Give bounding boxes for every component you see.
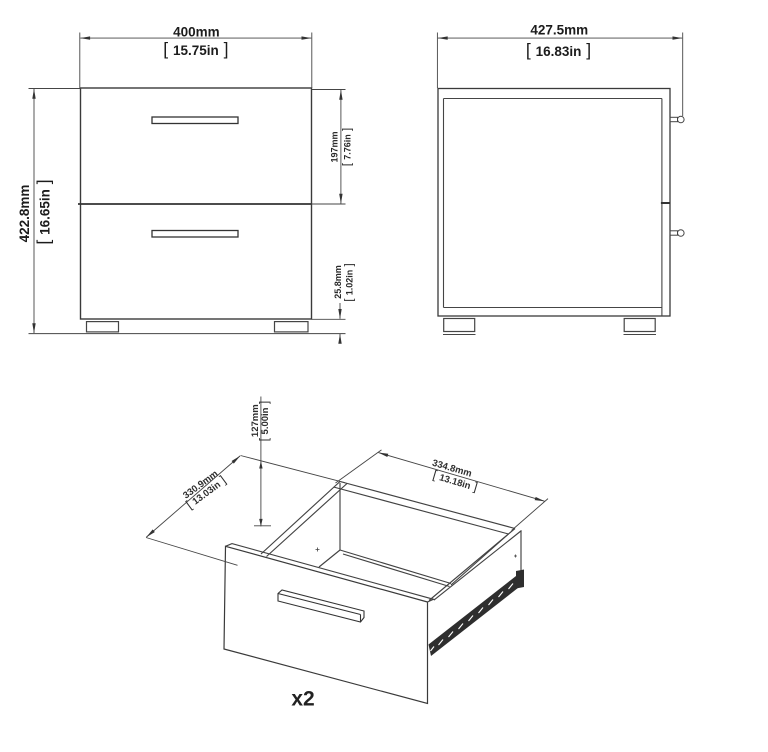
svg-text:25.8mm: 25.8mm (333, 265, 343, 299)
svg-text:422.8mm: 422.8mm (17, 185, 32, 243)
svg-text:197mm: 197mm (330, 131, 340, 162)
svg-text:x2: x2 (291, 688, 314, 711)
svg-text:427.5mm: 427.5mm (530, 23, 588, 38)
svg-text:400mm: 400mm (173, 24, 220, 39)
svg-text:[ 5.00in ]: [ 5.00in ] (257, 401, 271, 442)
svg-text:[ 1.02in ]: [ 1.02in ] (343, 263, 356, 302)
svg-text:[ 7.76in ]: [ 7.76in ] (341, 128, 354, 167)
